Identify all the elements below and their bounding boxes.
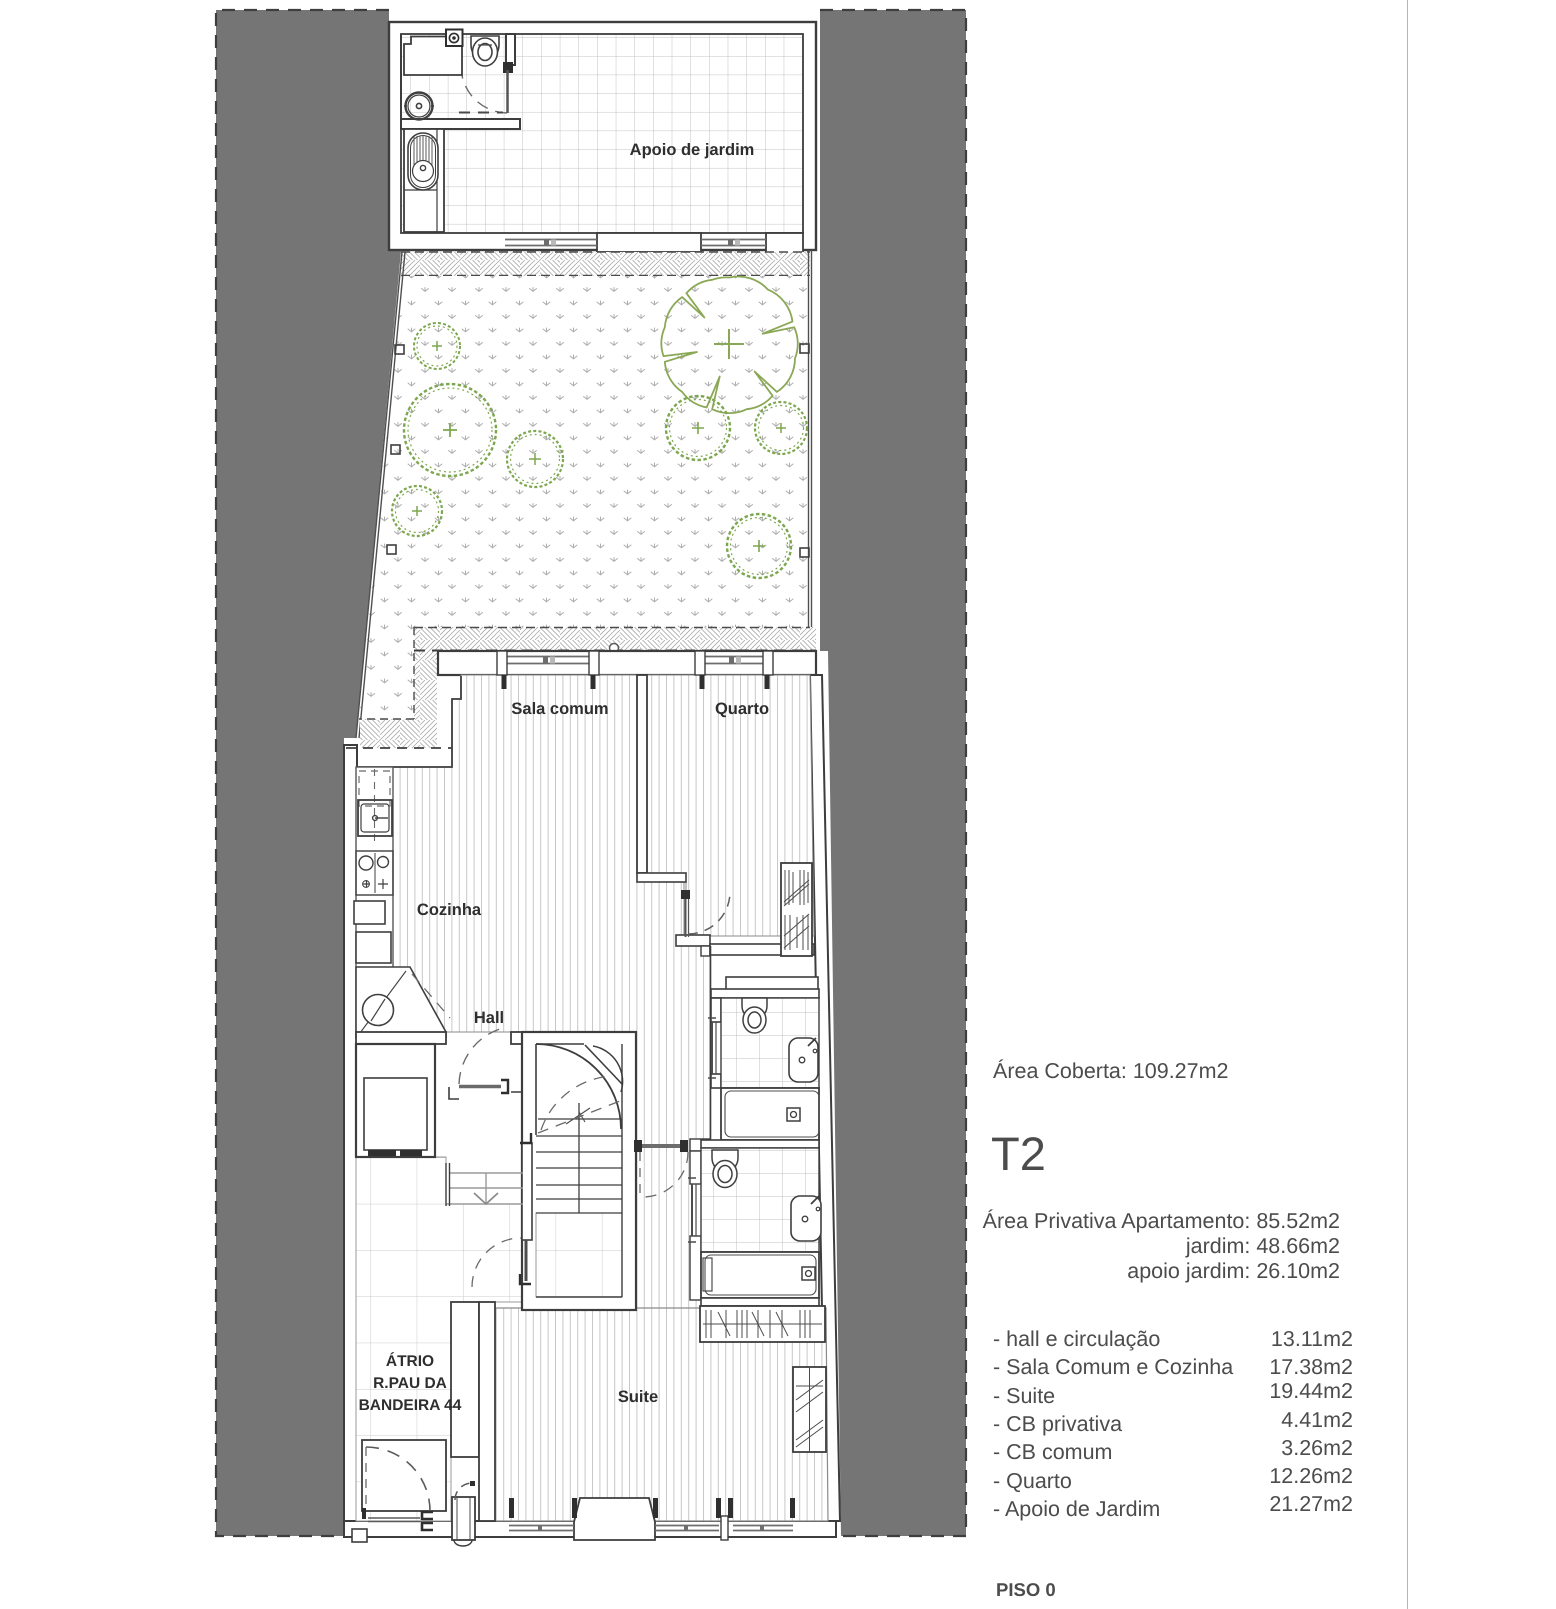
svg-text:- Suite: - Suite	[993, 1384, 1055, 1408]
svg-text:19.44m2: 19.44m2	[1269, 1379, 1353, 1403]
svg-text:- Sala Comum e Cozinha: - Sala Comum e Cozinha	[993, 1355, 1233, 1379]
svg-text:17.38m2: 17.38m2	[1269, 1355, 1353, 1379]
svg-text:R.PAU DA: R.PAU DA	[373, 1375, 447, 1392]
svg-text:- CB privativa: - CB privativa	[993, 1412, 1122, 1436]
svg-text:Quarto: Quarto	[715, 700, 769, 718]
svg-text:21.27m2: 21.27m2	[1269, 1492, 1353, 1516]
svg-text:13.11m2: 13.11m2	[1271, 1327, 1353, 1351]
svg-text:ÁTRIO: ÁTRIO	[386, 1352, 434, 1370]
svg-text:Área Coberta: 109.27m2: Área Coberta: 109.27m2	[993, 1059, 1228, 1083]
svg-text:Hall: Hall	[474, 1009, 504, 1027]
svg-text:- Quarto: - Quarto	[993, 1469, 1072, 1493]
svg-text:Sala comum: Sala comum	[511, 700, 608, 718]
svg-text:- CB comum: - CB comum	[993, 1440, 1112, 1464]
svg-text:12.26m2: 12.26m2	[1269, 1464, 1353, 1488]
svg-text:4.41m2: 4.41m2	[1281, 1408, 1353, 1432]
svg-text:Cozinha: Cozinha	[417, 901, 482, 919]
svg-text:Área Privativa Apartamento: 85: Área Privativa Apartamento: 85.52m2	[983, 1209, 1340, 1233]
svg-text:3.26m2: 3.26m2	[1281, 1436, 1353, 1460]
svg-text:- Apoio de Jardim: - Apoio de Jardim	[993, 1497, 1160, 1521]
svg-text:- hall e circulação: - hall e circulação	[993, 1327, 1160, 1351]
svg-text:T2: T2	[991, 1127, 1046, 1180]
svg-text:Apoio de jardim: Apoio de jardim	[630, 141, 755, 159]
svg-text:PISO 0: PISO 0	[996, 1579, 1056, 1600]
svg-text:apoio jardim: 26.10m2: apoio jardim: 26.10m2	[1127, 1259, 1340, 1283]
svg-text:jardim: 48.66m2: jardim: 48.66m2	[1185, 1234, 1340, 1258]
svg-text:BANDEIRA 44: BANDEIRA 44	[359, 1397, 462, 1414]
svg-text:Suite: Suite	[618, 1388, 658, 1406]
